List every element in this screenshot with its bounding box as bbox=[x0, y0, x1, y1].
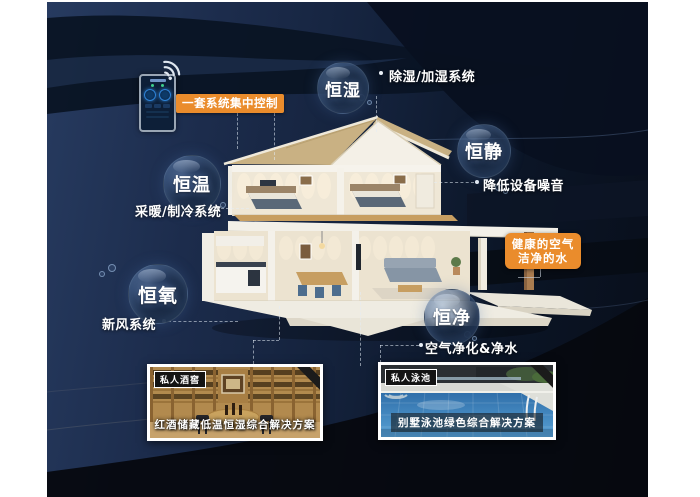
readout-cell bbox=[163, 104, 170, 108]
connector-banner-to-roof bbox=[274, 113, 275, 160]
bubble-constant-quiet: 恒静 bbox=[457, 124, 511, 178]
label-heating-cooling-system: 采暖/制冷系统 bbox=[135, 201, 221, 220]
connector-house-to-wine-v1 bbox=[279, 306, 280, 340]
connector-banner-to-roof-2 bbox=[237, 113, 238, 149]
connector-oxygen bbox=[168, 321, 238, 322]
green-dot bbox=[151, 84, 154, 87]
green-dot bbox=[161, 84, 164, 87]
connector-house-to-wine-h bbox=[253, 340, 279, 341]
readout-cell bbox=[154, 104, 161, 108]
connector-house-to-photos bbox=[360, 292, 361, 366]
corner-ribbon bbox=[529, 365, 553, 389]
deco-bubble bbox=[367, 100, 372, 105]
bubble-constant-humidity: 恒湿 bbox=[317, 62, 369, 114]
connector-purify-to-pool bbox=[380, 345, 381, 363]
smart-home-app-phone bbox=[139, 74, 176, 132]
private-pool-photo: 私人泳池 别墅泳池绿色综合解决方案 bbox=[378, 362, 556, 440]
central-control-banner: 一套系统集中控制 bbox=[176, 94, 284, 113]
deco-bubble bbox=[108, 264, 116, 272]
corner-ribbon bbox=[296, 367, 320, 391]
phone-readouts bbox=[145, 104, 170, 108]
connector-house-to-wine-v2 bbox=[253, 340, 254, 364]
connector-hibox-h bbox=[518, 277, 540, 278]
connector-temperature bbox=[221, 208, 249, 209]
label-noise-reduction: 降低设备噪音 bbox=[483, 175, 564, 194]
phone-control-dials bbox=[143, 89, 172, 101]
connector-dot bbox=[379, 71, 383, 75]
wine-cellar-tag: 私人酒窖 bbox=[154, 371, 206, 388]
connector-purify bbox=[380, 345, 419, 346]
connector-dot bbox=[419, 343, 423, 347]
wine-cellar-caption: 红酒储藏低温恒湿综合解决方案 bbox=[150, 417, 320, 432]
private-pool-caption: 别墅泳池绿色综合解决方案 bbox=[391, 413, 543, 432]
dial-icon bbox=[144, 89, 156, 101]
private-pool-tag: 私人泳池 bbox=[385, 369, 437, 386]
deco-bubble bbox=[99, 271, 105, 277]
hibox-line1: 健康的空气 bbox=[505, 237, 581, 251]
label-dehumidify-system: 除湿/加湿系统 bbox=[389, 66, 475, 85]
healthy-air-water-box: 健康的空气 洁净的水 bbox=[505, 233, 581, 269]
label-fresh-air-system: 新风系统 bbox=[102, 314, 156, 333]
phone-app-titlebar bbox=[150, 79, 166, 82]
connector-quiet bbox=[434, 182, 474, 183]
bubble-constant-clean: 恒净 bbox=[424, 289, 480, 345]
poster-canvas: 一套系统集中控制 健康的空气 洁净的水 恒湿 恒静 恒温 恒氧 恒净 除湿/加湿… bbox=[0, 0, 700, 497]
phone-list-row bbox=[146, 116, 169, 118]
readout-cell bbox=[145, 104, 152, 108]
hibox-line2: 洁净的水 bbox=[505, 251, 581, 265]
wine-cellar-photo: 私人酒窖 红酒储藏低温恒湿综合解决方案 bbox=[147, 364, 323, 441]
phone-list-row bbox=[146, 111, 169, 113]
dial-icon bbox=[159, 89, 171, 101]
label-air-water-purification: 空气净化&净水 bbox=[425, 338, 518, 357]
connector-humidity-to-roof bbox=[376, 96, 377, 132]
phone-status-dots bbox=[147, 84, 168, 87]
connector-dot bbox=[475, 180, 479, 184]
